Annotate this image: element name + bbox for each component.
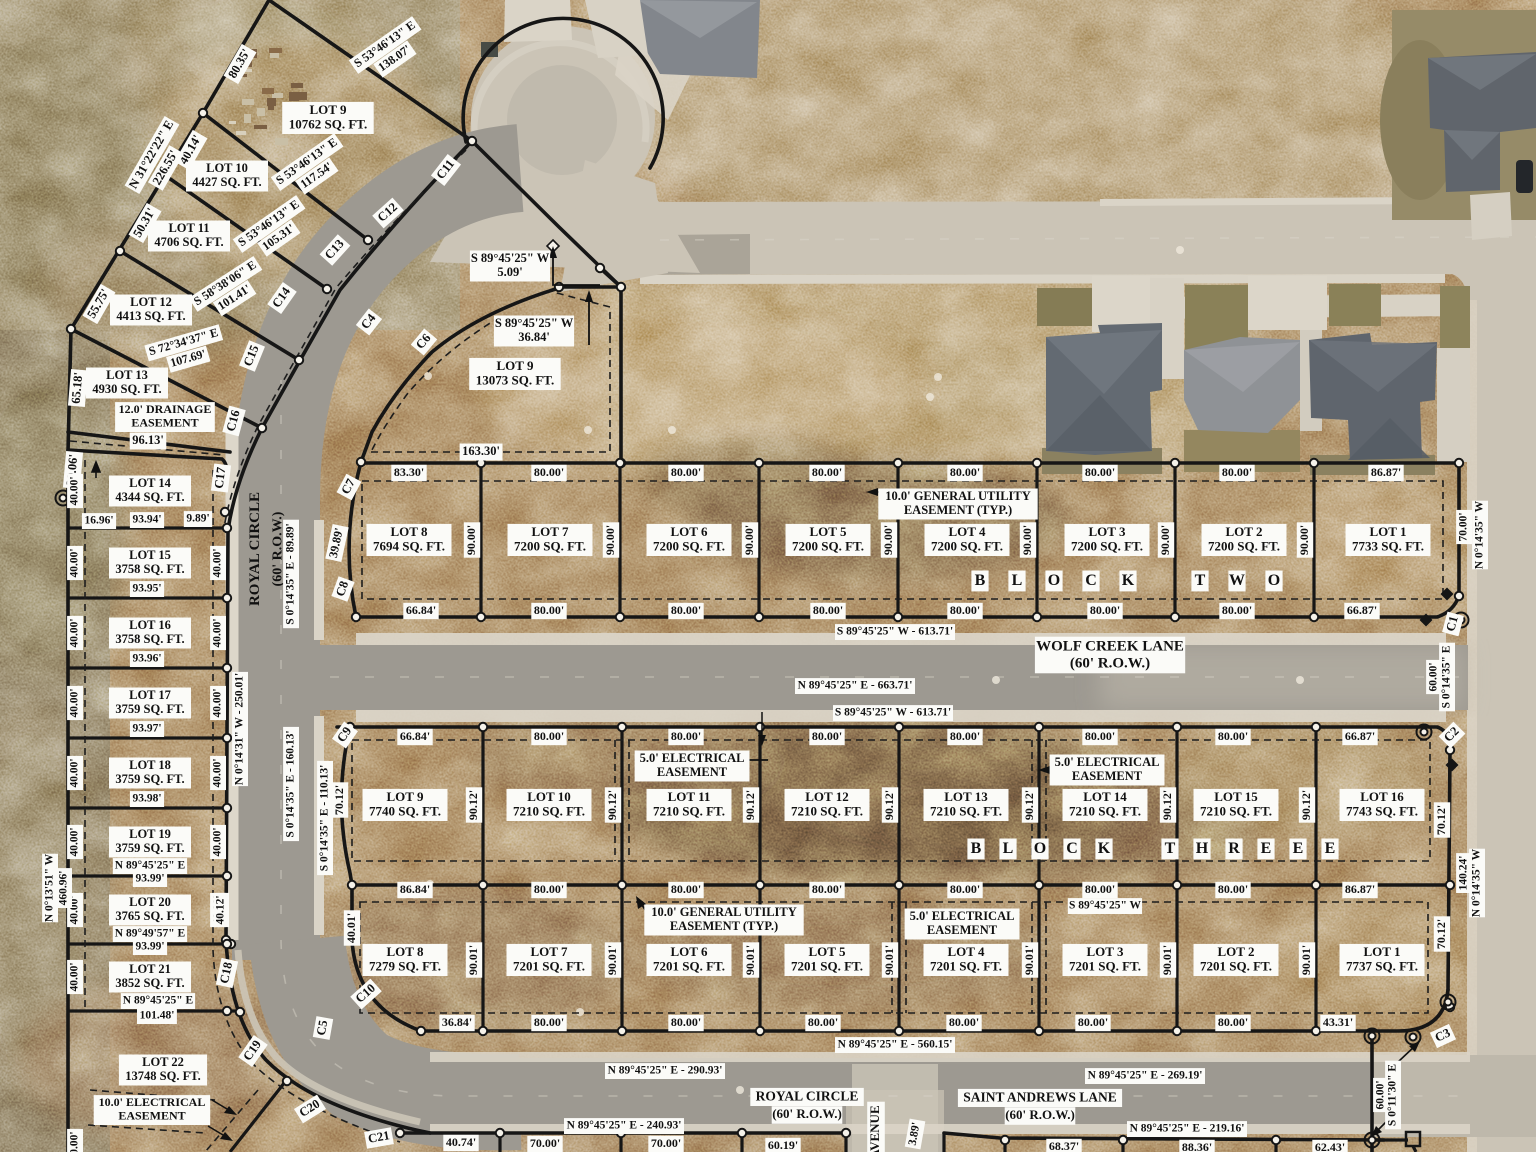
svg-text:H: H xyxy=(1196,840,1209,857)
svg-text:C17: C17 xyxy=(212,466,229,489)
svg-text:90.01': 90.01' xyxy=(466,945,480,975)
svg-text:K: K xyxy=(1122,572,1135,589)
svg-text:83.30': 83.30' xyxy=(394,465,424,479)
svg-text:N 89°45'25" E - 290.93': N 89°45'25" E - 290.93' xyxy=(608,1065,723,1077)
svg-text:90.00': 90.00' xyxy=(1020,525,1034,555)
svg-text:9.89': 9.89' xyxy=(186,513,209,525)
svg-text:93.96': 93.96' xyxy=(132,653,161,665)
svg-text:80.00': 80.00' xyxy=(1218,882,1248,896)
svg-text:40.00': 40.00' xyxy=(69,962,81,991)
svg-text:62.43': 62.43' xyxy=(1315,1140,1345,1152)
svg-text:O: O xyxy=(1268,572,1280,589)
svg-text:80.00': 80.00' xyxy=(534,465,564,479)
svg-text:40.00': 40.00' xyxy=(69,548,81,577)
svg-text:R: R xyxy=(1228,840,1240,857)
svg-text:T: T xyxy=(1195,572,1206,589)
svg-text:(60' R.O.W.): (60' R.O.W.) xyxy=(772,1106,842,1121)
svg-text:O: O xyxy=(1034,840,1046,857)
svg-text:88.36': 88.36' xyxy=(1182,1140,1212,1152)
svg-text:N 89°45'25" E: N 89°45'25" E xyxy=(123,995,194,1007)
svg-text:80.00': 80.00' xyxy=(1090,603,1120,617)
svg-text:80.00': 80.00' xyxy=(671,882,701,896)
svg-text:90.00': 90.00' xyxy=(1297,525,1311,555)
svg-text:B: B xyxy=(971,840,982,857)
svg-text:60.00': 60.00' xyxy=(1375,1080,1387,1109)
svg-text:B: B xyxy=(975,572,986,589)
svg-text:140.24': 140.24' xyxy=(1458,856,1470,891)
svg-text:E: E xyxy=(1325,840,1336,857)
svg-text:90.01': 90.01' xyxy=(743,945,757,975)
svg-text:80.00': 80.00' xyxy=(1085,882,1115,896)
svg-text:N 0°14'31" W - 250.01': N 0°14'31" W - 250.01' xyxy=(234,673,246,785)
svg-text:80.00': 80.00' xyxy=(812,729,842,743)
svg-text:80.00': 80.00' xyxy=(671,465,701,479)
svg-text:80.00': 80.00' xyxy=(812,465,842,479)
svg-text:S 0°14'35" E - 110.13': S 0°14'35" E - 110.13' xyxy=(319,765,331,872)
svg-text:36.84': 36.84' xyxy=(442,1015,472,1029)
svg-text:40.12': 40.12' xyxy=(215,895,227,924)
svg-text:70.12': 70.12' xyxy=(332,785,346,815)
svg-text:93.94': 93.94' xyxy=(132,514,161,526)
svg-text:80.00': 80.00' xyxy=(950,603,980,617)
svg-text:N 0°13'51" W: N 0°13'51" W xyxy=(44,853,56,922)
svg-text:80.00': 80.00' xyxy=(1085,465,1115,479)
svg-text:N 89°45'25" E - 240.93': N 89°45'25" E - 240.93' xyxy=(567,1120,682,1132)
svg-text:80.00': 80.00' xyxy=(1078,1015,1108,1029)
svg-text:68.37': 68.37' xyxy=(1049,1139,1079,1152)
svg-text:40.00': 40.00' xyxy=(212,688,224,717)
svg-text:N 0°14'35" W: N 0°14'35" W xyxy=(1474,500,1486,569)
svg-text:90.12': 90.12' xyxy=(1160,790,1174,820)
svg-text:S 89°45'25" W - 613.71': S 89°45'25" W - 613.71' xyxy=(837,626,953,638)
svg-text:80.00': 80.00' xyxy=(1222,465,1252,479)
svg-text:80.00': 80.00' xyxy=(534,729,564,743)
svg-text:80.00': 80.00' xyxy=(1218,1015,1248,1029)
svg-text:L: L xyxy=(1003,840,1014,857)
svg-text:40.00': 40.00' xyxy=(212,548,224,577)
svg-text:90.00': 90.00' xyxy=(742,525,756,555)
svg-text:93.95': 93.95' xyxy=(132,583,161,595)
svg-text:K: K xyxy=(1098,840,1111,857)
svg-text:E: E xyxy=(1293,840,1304,857)
svg-text:86.84': 86.84' xyxy=(400,882,430,896)
svg-text:(60' R.O.W.): (60' R.O.W.) xyxy=(1005,1107,1075,1122)
svg-text:90.12': 90.12' xyxy=(605,790,619,820)
svg-text:80.00': 80.00' xyxy=(949,1015,979,1029)
svg-text:90.01': 90.01' xyxy=(882,945,896,975)
svg-text:40.00': 40.00' xyxy=(69,827,81,856)
svg-text:80.00': 80.00' xyxy=(950,729,980,743)
svg-text:43.31': 43.31' xyxy=(1323,1015,1353,1029)
svg-text:90.01': 90.01' xyxy=(1299,945,1313,975)
svg-text:90.00': 90.00' xyxy=(603,525,617,555)
svg-text:70.00': 70.00' xyxy=(1458,512,1470,541)
svg-text:T: T xyxy=(1165,840,1176,857)
svg-text:N 89°45'25" E - 269.19': N 89°45'25" E - 269.19' xyxy=(1088,1070,1203,1082)
svg-text:90.12': 90.12' xyxy=(1022,790,1036,820)
svg-text:N 89°45'25" E - 663.71': N 89°45'25" E - 663.71' xyxy=(798,680,913,692)
svg-text:90.12': 90.12' xyxy=(882,790,896,820)
svg-text:80.00': 80.00' xyxy=(812,882,842,896)
svg-text:80.00': 80.00' xyxy=(671,1015,701,1029)
svg-text:70.00': 70.00' xyxy=(530,1136,560,1150)
svg-text:N 89°45'25" E - 219.16': N 89°45'25" E - 219.16' xyxy=(1130,1123,1245,1135)
svg-text:40.00': 40.00' xyxy=(69,688,81,717)
svg-text:80.00': 80.00' xyxy=(950,882,980,896)
svg-text:S 0°14'35" E - 89.89': S 0°14'35" E - 89.89' xyxy=(285,523,297,624)
svg-text:90.01': 90.01' xyxy=(1160,945,1174,975)
svg-text:90.12': 90.12' xyxy=(466,790,480,820)
svg-text:O: O xyxy=(1048,572,1060,589)
svg-text:80.00': 80.00' xyxy=(534,1015,564,1029)
svg-text:40.00': 40.00' xyxy=(212,618,224,647)
svg-text:163.30': 163.30' xyxy=(462,444,500,458)
svg-text:96.13': 96.13' xyxy=(132,433,164,447)
svg-text:90.00': 90.00' xyxy=(881,525,895,555)
svg-text:80.00': 80.00' xyxy=(808,1015,838,1029)
svg-text:E: E xyxy=(1261,840,1272,857)
svg-text:40.01': 40.01' xyxy=(344,913,358,943)
svg-text:70.12': 70.12' xyxy=(1434,919,1448,949)
svg-text:66.84': 66.84' xyxy=(406,603,436,617)
svg-text:80.00': 80.00' xyxy=(671,729,701,743)
svg-text:70.12': 70.12' xyxy=(1434,805,1448,835)
svg-text:80.00': 80.00' xyxy=(1222,603,1252,617)
svg-text:90.12': 90.12' xyxy=(1299,790,1313,820)
svg-text:40.00': 40.00' xyxy=(212,758,224,787)
svg-text:40.00': 40.00' xyxy=(69,476,81,505)
svg-text:C: C xyxy=(1085,572,1097,589)
svg-text:L: L xyxy=(1012,572,1023,589)
svg-text:80.00': 80.00' xyxy=(1218,729,1248,743)
svg-text:12.0' DRAINAGEEASEMENT: 12.0' DRAINAGEEASEMENT xyxy=(119,402,212,429)
svg-text:66.84': 66.84' xyxy=(400,729,430,743)
svg-text:10.0' GENERAL UTILITYEASEMENT: 10.0' GENERAL UTILITYEASEMENT (TYP.) xyxy=(885,489,1031,517)
svg-text:90.12': 90.12' xyxy=(743,790,757,820)
svg-text:W: W xyxy=(1229,572,1245,589)
svg-text:60.00': 60.00' xyxy=(1428,662,1440,691)
svg-text:N 0°14'35" W: N 0°14'35" W xyxy=(1471,848,1483,917)
svg-text:C: C xyxy=(1066,840,1078,857)
svg-text:40.00': 40.00' xyxy=(69,1131,81,1152)
svg-text:80.00': 80.00' xyxy=(950,465,980,479)
svg-text:80.00': 80.00' xyxy=(671,603,701,617)
svg-text:C5: C5 xyxy=(314,1019,330,1036)
svg-text:93.98': 93.98' xyxy=(132,793,161,805)
svg-text:10.0' GENERAL UTILITYEASEMENT: 10.0' GENERAL UTILITYEASEMENT (TYP.) xyxy=(651,905,797,933)
svg-text:90.01': 90.01' xyxy=(605,945,619,975)
svg-text:80.00': 80.00' xyxy=(534,603,564,617)
svg-text:ROYAL CIRCLE: ROYAL CIRCLE xyxy=(756,1088,859,1103)
svg-text:86.87': 86.87' xyxy=(1371,465,1401,479)
svg-text:N 89°45'25" E: N 89°45'25" E xyxy=(115,860,186,872)
svg-text:60.19': 60.19' xyxy=(768,1138,798,1152)
svg-text:65.18': 65.18' xyxy=(69,372,86,405)
svg-text:70.00': 70.00' xyxy=(651,1136,681,1150)
svg-text:S 0°14'35" E: S 0°14'35" E xyxy=(1441,645,1453,708)
svg-text:S 89°45'25" W: S 89°45'25" W xyxy=(1069,900,1142,912)
svg-text:90.00': 90.00' xyxy=(1158,525,1172,555)
svg-text:40.00': 40.00' xyxy=(69,618,81,647)
svg-text:40.00': 40.00' xyxy=(69,758,81,787)
svg-text:101.48': 101.48' xyxy=(140,1010,175,1022)
svg-text:40.74': 40.74' xyxy=(446,1135,476,1149)
svg-text:SAINT ANDREWS LANE: SAINT ANDREWS LANE xyxy=(963,1089,1117,1104)
svg-text:80.00': 80.00' xyxy=(534,882,564,896)
svg-text:80.00': 80.00' xyxy=(813,603,843,617)
svg-text:S 0°14'35" E - 160.13': S 0°14'35" E - 160.13' xyxy=(285,730,297,837)
svg-text:66.87': 66.87' xyxy=(1345,729,1375,743)
svg-text:86.87': 86.87' xyxy=(1345,882,1375,896)
svg-text:N 89°49'57" E: N 89°49'57" E xyxy=(115,928,186,940)
svg-text:93.99': 93.99' xyxy=(135,941,164,953)
svg-text:ROYAL CIRCLE: ROYAL CIRCLE xyxy=(247,492,263,606)
svg-text:N 89°45'25" E - 560.15': N 89°45'25" E - 560.15' xyxy=(838,1039,953,1051)
svg-text:16.96': 16.96' xyxy=(84,515,113,527)
svg-text:460.96': 460.96' xyxy=(58,871,70,906)
svg-text:66.87': 66.87' xyxy=(1347,603,1377,617)
svg-text:S 0°11'30" E: S 0°11'30" E xyxy=(1387,1064,1399,1126)
svg-text:80.00': 80.00' xyxy=(1085,729,1115,743)
svg-text:S 89°45'25" W - 613.71': S 89°45'25" W - 613.71' xyxy=(835,707,951,719)
svg-text:90.00': 90.00' xyxy=(464,525,478,555)
svg-text:93.97': 93.97' xyxy=(132,723,161,735)
svg-text:93.99': 93.99' xyxy=(135,873,164,885)
svg-text:AVENUE: AVENUE xyxy=(867,1105,882,1152)
svg-text:90.01': 90.01' xyxy=(1022,945,1036,975)
svg-text:40.00': 40.00' xyxy=(212,827,224,856)
